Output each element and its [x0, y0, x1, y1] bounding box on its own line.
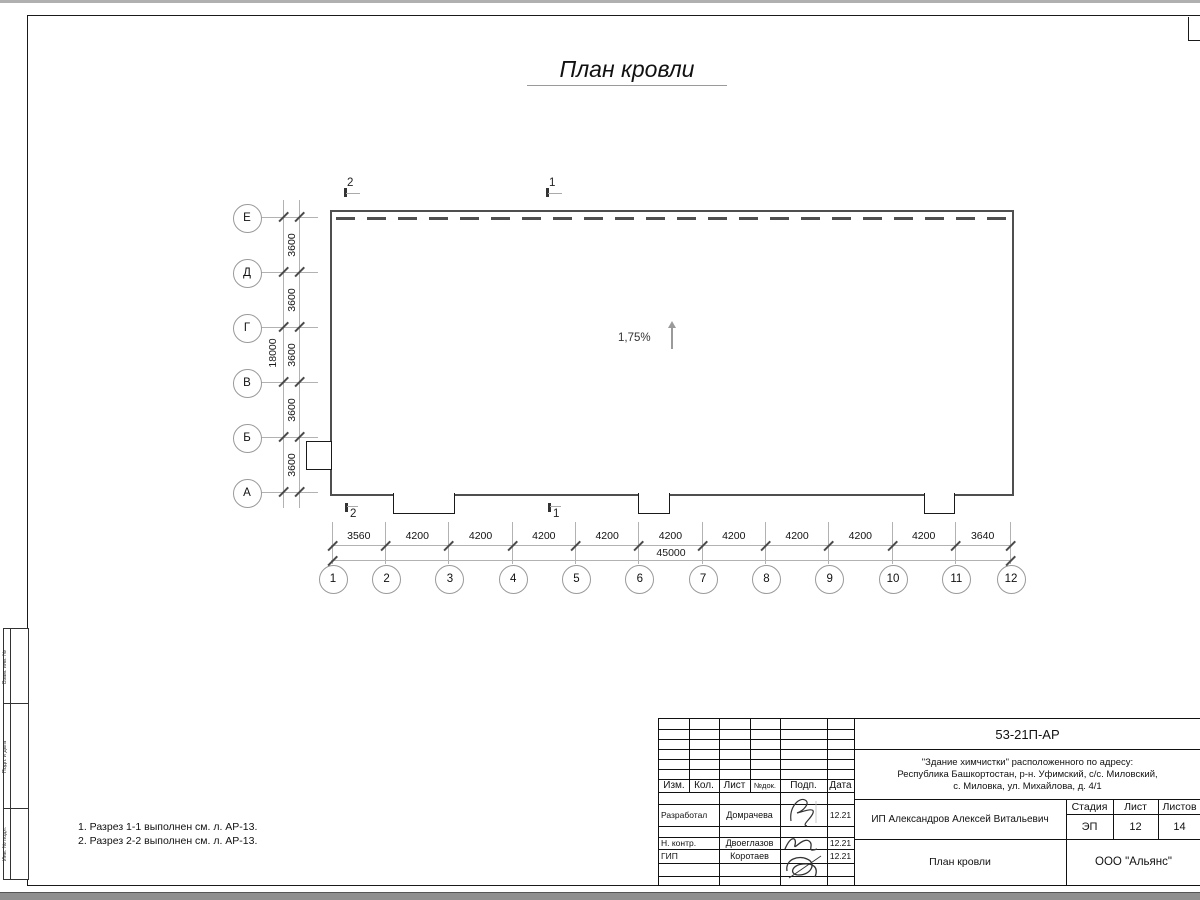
col-axis-bubble: 9: [815, 565, 844, 594]
row-axis-bubble: В: [233, 369, 262, 398]
col-spacing-dimension: 3560: [329, 530, 389, 542]
row-spacing-dimension: 3600: [285, 280, 299, 320]
page-top-edge: [0, 0, 1200, 3]
col-spacing-dimension: 4200: [894, 530, 954, 542]
tb-name-korotaev: Коротаев: [719, 849, 780, 863]
tb-project-line1: "Здание химчистки" расположенного по адр…: [922, 757, 1133, 769]
tb-header-podp: Подп.: [780, 779, 827, 792]
tb-role-razrabotal: Разработал: [661, 804, 719, 826]
col-axis-bubble: 4: [499, 565, 528, 594]
col-spacing-dimension: 3640: [953, 530, 1013, 542]
tb-header-list: Лист: [719, 779, 750, 792]
row-axis-bubble: Д: [233, 259, 262, 288]
signature-dvoeglazov-korotaev: [781, 831, 827, 883]
tb-company: ООО "Альянс": [1066, 839, 1200, 885]
dim-line-col-segments: [331, 545, 1011, 546]
col-axis-bubble: 7: [689, 565, 718, 594]
col-spacing-dimension: 4200: [830, 530, 890, 542]
roof-dashed-line: [336, 217, 1006, 220]
tb-date-1: 12.21: [827, 804, 854, 826]
section-tick: [345, 503, 348, 512]
roof-outline: [330, 210, 1014, 496]
col-axis-bubble: 5: [562, 565, 591, 594]
tb-project-line2: Республика Башкортостан, р-н. Уфимский, …: [897, 769, 1157, 781]
row-axis-leader: [259, 382, 318, 383]
page-title: План кровли: [527, 56, 727, 86]
tb-stage-label: Стадия: [1066, 799, 1113, 814]
col-spacing-dimension: 4200: [704, 530, 764, 542]
col-axis-bubble: 12: [997, 565, 1026, 594]
tb-drawing-name: План кровли: [854, 839, 1066, 885]
dim-line-col-total: [331, 560, 1011, 561]
row-axis-leader: [259, 217, 318, 218]
row-spacing-dimension: 3600: [285, 390, 299, 430]
frame-corner-box: [1188, 17, 1200, 41]
row-spacing-dimension: 3600: [285, 335, 299, 375]
tb-project-address: "Здание химчистки" расположенного по адр…: [854, 750, 1200, 799]
side-stamp-podp: Подп. и дата: [3, 703, 29, 810]
side-stamp-vzam: Взам. инв. №: [3, 628, 29, 705]
left-porch: [306, 441, 332, 470]
signature-domracheva: [785, 795, 825, 829]
col-spacing-dimension: 4200: [387, 530, 447, 542]
section-mark-1-bottom: 1: [553, 508, 559, 520]
tb-project-line3: с. Миловка, ул. Михайлова, д. 4/1: [953, 781, 1101, 793]
dim-line-row-total: [283, 200, 284, 508]
title-block: Изм. Кол. Лист №док. Подп. Дата Разработ…: [658, 718, 1200, 886]
row-axis-leader: [259, 437, 318, 438]
tb-role-gip: ГИП: [661, 849, 719, 863]
bottom-porch-3: [924, 493, 955, 514]
side-stamp-vzam-label: Взам. инв. №: [2, 648, 12, 686]
tb-sheets-label: Листов: [1158, 799, 1200, 814]
tb-header-kol: Кол.: [689, 779, 719, 792]
tb-doc-number: 53-21П-АР: [854, 719, 1200, 749]
row-axis-bubble: Е: [233, 204, 262, 233]
tb-name-domracheva: Домрачева: [719, 804, 780, 826]
section-mark-1-top: 1: [549, 177, 555, 189]
row-axis-leader: [259, 492, 318, 493]
row-axis-bubble: Б: [233, 424, 262, 453]
section-tick: [548, 503, 551, 512]
tb-stage-value: ЭП: [1066, 814, 1113, 839]
tb-sheet-label: Лист: [1113, 799, 1158, 814]
row-axis-bubble: А: [233, 479, 262, 508]
col-axis-bubble: 2: [372, 565, 401, 594]
col-axis-bubble: 6: [625, 565, 654, 594]
tb-role-nkontr: Н. контр.: [661, 837, 719, 849]
col-axis-bubble: 10: [879, 565, 908, 594]
row-spacing-dimension: 3600: [285, 445, 299, 485]
col-axis-bubble: 8: [752, 565, 781, 594]
dim-line-row-segments: [299, 200, 300, 508]
slope-arrow: [671, 327, 673, 349]
tb-header-ndok: №док.: [750, 779, 780, 792]
row-axis-leader: [259, 327, 318, 328]
col-spacing-dimension: 4200: [640, 530, 700, 542]
side-stamp-podp-label: Подп. и дата: [2, 738, 12, 776]
col-axis-bubble: 1: [319, 565, 348, 594]
tb-sheets-value: 14: [1158, 814, 1200, 839]
drawing-sheet: Взам. инв. № Подп. и дата Инв. № подл. П…: [0, 0, 1200, 900]
row-axis-bubble: Г: [233, 314, 262, 343]
tb-sheet-value: 12: [1113, 814, 1158, 839]
tb-name-dvoeglazov: Двоеглазов: [719, 837, 780, 849]
note-1: 1. Разрез 1-1 выполнен см. л. АР-13.: [78, 821, 257, 833]
section-mark-2-bottom: 2: [350, 508, 356, 520]
side-stamp-inv-label: Инв. № подл.: [2, 825, 12, 863]
slope-label: 1,75%: [618, 332, 651, 344]
row-total-dimension: 18000: [266, 332, 280, 374]
section-line: [548, 193, 562, 194]
col-spacing-dimension: 4200: [767, 530, 827, 542]
tb-date-3: 12.21: [827, 849, 854, 863]
row-axis-leader: [259, 272, 318, 273]
slope-arrow-head: [668, 321, 676, 328]
col-spacing-dimension: 4200: [451, 530, 511, 542]
col-spacing-dimension: 4200: [514, 530, 574, 542]
section-line: [346, 193, 360, 194]
side-stamp-inv: Инв. № подл.: [3, 808, 29, 880]
col-axis-bubble: 3: [435, 565, 464, 594]
section-line: [550, 506, 561, 507]
tb-header-izm: Изм.: [659, 779, 689, 792]
tb-header-data: Дата: [827, 779, 854, 792]
section-line: [347, 506, 358, 507]
title-block-line: [659, 792, 854, 793]
bottom-porch-1: [393, 493, 455, 514]
bottom-porch-2: [638, 493, 670, 514]
col-axis-bubble: 11: [942, 565, 971, 594]
page-bottom-edge: [0, 892, 1200, 900]
section-mark-2-top: 2: [347, 177, 353, 189]
tb-client: ИП Александров Алексей Витальевич: [854, 799, 1066, 839]
row-spacing-dimension: 3600: [285, 225, 299, 265]
note-2: 2. Разрез 2-2 выполнен см. л. АР-13.: [78, 835, 257, 847]
col-spacing-dimension: 4200: [577, 530, 637, 542]
tb-date-2: 12.21: [827, 837, 854, 849]
